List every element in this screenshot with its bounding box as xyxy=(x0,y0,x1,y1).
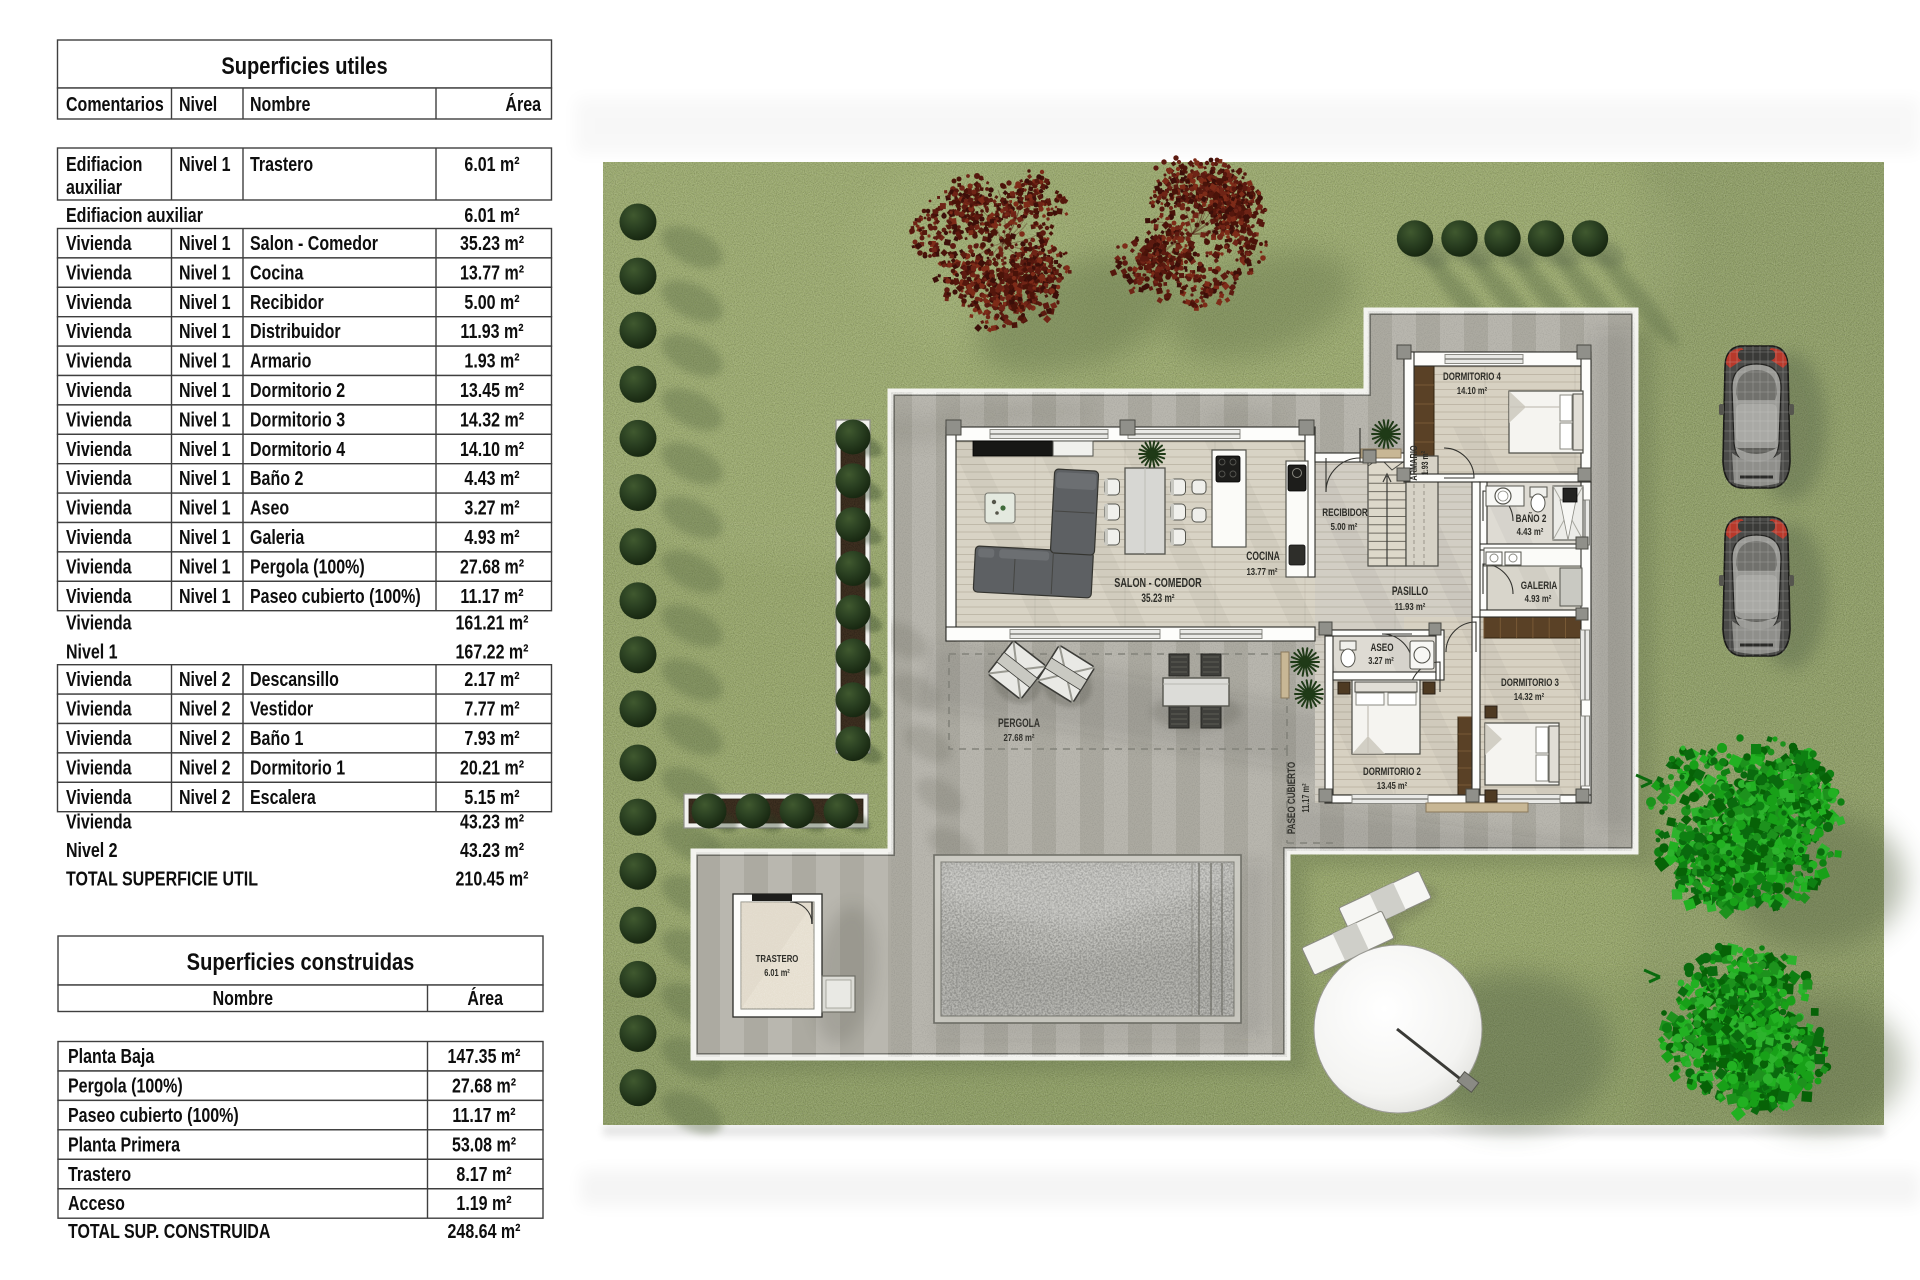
svg-text:14.32 m²: 14.32 m² xyxy=(1514,691,1544,702)
svg-text:4.43 m²: 4.43 m² xyxy=(1517,526,1544,537)
svg-text:35.23 m²: 35.23 m² xyxy=(1141,593,1175,606)
svg-text:PASEO CUBIERTO: PASEO CUBIERTO xyxy=(1286,761,1299,834)
svg-text:TRASTERO: TRASTERO xyxy=(756,953,799,964)
svg-text:GALERIA: GALERIA xyxy=(1521,580,1558,593)
svg-text:14.10 m²: 14.10 m² xyxy=(1457,385,1487,396)
svg-text:BAÑO 2: BAÑO 2 xyxy=(1516,513,1547,526)
svg-text:SALON - COMEDOR: SALON - COMEDOR xyxy=(1114,577,1201,591)
svg-text:RECIBIDOR: RECIBIDOR xyxy=(1322,507,1368,520)
svg-text:5.00 m²: 5.00 m² xyxy=(1331,521,1358,532)
svg-text:1.93 m²: 1.93 m² xyxy=(1419,451,1430,475)
svg-text:ARMARIO: ARMARIO xyxy=(1408,445,1419,480)
svg-text:11.93 m²: 11.93 m² xyxy=(1395,601,1426,612)
svg-text:13.77 m²: 13.77 m² xyxy=(1246,566,1277,577)
svg-text:DORMITORIO 4: DORMITORIO 4 xyxy=(1443,371,1501,384)
svg-text:4.93 m²: 4.93 m² xyxy=(1525,593,1552,604)
svg-text:PERGOLA: PERGOLA xyxy=(998,718,1041,731)
svg-text:13.45 m²: 13.45 m² xyxy=(1377,780,1407,791)
svg-text:11.17 m²: 11.17 m² xyxy=(1300,783,1311,812)
svg-text:DORMITORIO 3: DORMITORIO 3 xyxy=(1501,677,1559,690)
svg-text:27.68 m²: 27.68 m² xyxy=(1003,732,1034,743)
svg-text:6.01 m²: 6.01 m² xyxy=(764,967,790,978)
svg-text:PASILLO: PASILLO xyxy=(1392,586,1428,599)
svg-text:ASEO: ASEO xyxy=(1370,642,1393,655)
svg-text:DORMITORIO 2: DORMITORIO 2 xyxy=(1363,766,1421,779)
svg-text:3.27 m²: 3.27 m² xyxy=(1368,655,1394,666)
svg-text:COCINA: COCINA xyxy=(1246,551,1280,564)
